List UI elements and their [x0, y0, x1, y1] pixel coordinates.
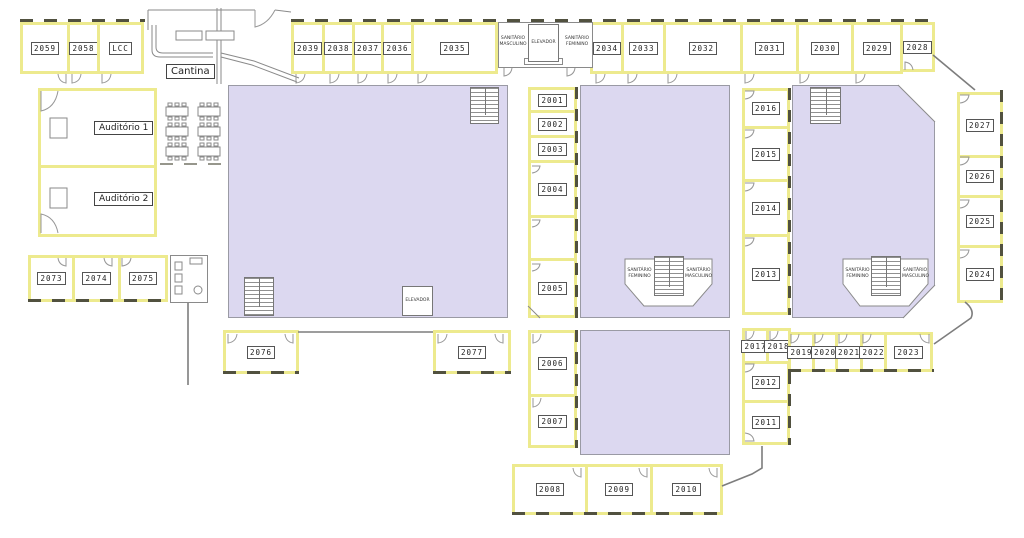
- room-label-2034: 2034: [593, 42, 621, 55]
- room-label-2007: 2007: [538, 415, 566, 428]
- room-2037: 2037: [352, 22, 384, 74]
- dashed-wall: [20, 19, 145, 22]
- stairs-center-sanitary: [654, 256, 684, 296]
- room-label-2025: 2025: [966, 215, 994, 228]
- room-label-2006: 2006: [538, 357, 566, 370]
- room-unlabeled: [528, 215, 577, 261]
- room-label-2001: 2001: [538, 94, 566, 107]
- dashed-wall: [788, 88, 791, 315]
- room-label-2059: 2059: [31, 42, 59, 55]
- room-2073: 2073: [28, 255, 75, 302]
- room-2015: 2015: [742, 126, 790, 182]
- room-label-2014: 2014: [752, 202, 780, 215]
- room-2007: 2007: [528, 394, 577, 448]
- stairs-west-bottom: [244, 277, 274, 316]
- room-label-2003: 2003: [538, 143, 566, 156]
- stairs-east-sanitary: [871, 256, 901, 296]
- room-label-2016: 2016: [752, 102, 780, 115]
- room-label-lcc: LCC: [109, 42, 132, 55]
- room-2031: 2031: [740, 22, 799, 74]
- room-2012: 2012: [742, 361, 790, 403]
- stairs-east-top: [810, 87, 841, 124]
- room-label-2027: 2027: [966, 119, 994, 132]
- dashed-wall: [1000, 90, 1003, 302]
- room-label-2024: 2024: [966, 268, 994, 281]
- room-2003: 2003: [528, 135, 577, 163]
- cantina-label: Cantina: [166, 64, 215, 79]
- room-2009: 2009: [585, 464, 653, 515]
- room-label-2031: 2031: [755, 42, 783, 55]
- room-2030: 2030: [796, 22, 854, 74]
- room-2016: 2016: [742, 88, 790, 129]
- sanitario-masculino-top-label: SANITÁRIO MASCULINO: [498, 36, 528, 47]
- dashed-wall: [223, 371, 299, 374]
- room-2014: 2014: [742, 179, 790, 237]
- room-2029: 2029: [851, 22, 903, 74]
- room-label-2038: 2038: [324, 42, 352, 55]
- room-2058: 2058: [67, 22, 100, 74]
- room-2025: 2025: [957, 195, 1003, 248]
- room-2013: 2013: [742, 234, 790, 315]
- room-2005: 2005: [528, 258, 577, 318]
- stairs-west-top: [470, 87, 499, 124]
- sanitario-feminino-center-label: SANITÁRIO FEMININO: [626, 268, 653, 279]
- room-2011: 2011: [742, 400, 790, 445]
- room-2026: 2026: [957, 155, 1003, 198]
- room-label-2035: 2035: [440, 42, 468, 55]
- dashed-wall: [788, 372, 791, 445]
- room-label-2077: 2077: [458, 346, 486, 359]
- dashed-wall: [433, 371, 511, 374]
- room-label-2074: 2074: [82, 272, 110, 285]
- room-2074: 2074: [72, 255, 121, 302]
- dashed-wall: [28, 299, 168, 302]
- dashed-wall: [512, 512, 723, 515]
- dashed-wall: [575, 330, 578, 448]
- room-2028: 2028: [900, 22, 935, 72]
- room-label-2011: 2011: [752, 416, 780, 429]
- room-2027: 2027: [957, 92, 1003, 158]
- room-label-2013: 2013: [752, 268, 780, 281]
- room-2032: 2032: [663, 22, 743, 74]
- room-label-2009: 2009: [605, 483, 633, 496]
- room-label-2075: 2075: [129, 272, 157, 285]
- room-2038: 2038: [322, 22, 355, 74]
- room-label-2076: 2076: [247, 346, 275, 359]
- open-hall-south: [580, 330, 730, 455]
- room-2036: 2036: [381, 22, 414, 74]
- elevator-west-hall-label: ELEVADOR: [405, 298, 429, 304]
- room-2023: 2023: [884, 332, 933, 372]
- room-2059: 2059: [20, 22, 70, 74]
- room-2024: 2024: [957, 245, 1003, 303]
- room-2034: 2034: [590, 22, 624, 74]
- elevator-top-label: ELEVADOR: [531, 40, 555, 46]
- room-label-2033: 2033: [629, 42, 657, 55]
- room-label-2030: 2030: [811, 42, 839, 55]
- elevator-top: ELEVADOR: [528, 24, 559, 62]
- elevator-west-hall: ELEVADOR: [402, 286, 433, 316]
- room-2022: 2022: [860, 332, 887, 372]
- room-label-2015: 2015: [752, 148, 780, 161]
- room-2077: 2077: [433, 330, 511, 374]
- floor-plan: 2059 2058 LCC 2039 2038 2037 2036 2035 2…: [0, 0, 1024, 538]
- room-label-2058: 2058: [69, 42, 97, 55]
- room-2008: 2008: [512, 464, 588, 515]
- room-2035: 2035: [411, 22, 498, 74]
- room-label-2032: 2032: [689, 42, 717, 55]
- dashed-wall: [160, 163, 222, 165]
- room-label-2037: 2037: [354, 42, 382, 55]
- room-label-2012: 2012: [752, 376, 780, 389]
- room-label-2010: 2010: [672, 483, 700, 496]
- room-label-2005: 2005: [538, 282, 566, 295]
- auditorio-1-label: Auditório 1: [94, 121, 153, 135]
- room-2033: 2033: [621, 22, 666, 74]
- sanitario-masculino-east-label: SANITÁRIO MASCULINO: [902, 268, 928, 279]
- room-label-2008: 2008: [536, 483, 564, 496]
- room-2010: 2010: [650, 464, 723, 515]
- room-2004: 2004: [528, 160, 577, 218]
- auditorio-2-label: Auditório 2: [94, 192, 153, 206]
- dashed-wall: [788, 369, 934, 372]
- room-label-2039: 2039: [294, 42, 322, 55]
- sanitario-feminino-top-label: SANITÁRIO FEMININO: [561, 36, 593, 47]
- room-label-2002: 2002: [538, 118, 566, 131]
- sanitario-feminino-east-label: SANITÁRIO FEMININO: [844, 268, 871, 279]
- wc-small-block: [170, 255, 208, 303]
- room-label-2073: 2073: [37, 272, 65, 285]
- dashed-wall: [575, 87, 578, 318]
- room-2076: 2076: [223, 330, 299, 374]
- room-2039: 2039: [291, 22, 325, 74]
- room-label-2026: 2026: [966, 170, 994, 183]
- room-label-2004: 2004: [538, 183, 566, 196]
- room-2002: 2002: [528, 110, 577, 138]
- room-2075: 2075: [118, 255, 168, 302]
- room-label-2029: 2029: [863, 42, 891, 55]
- dashed-wall: [291, 19, 935, 22]
- room-label-2036: 2036: [383, 42, 411, 55]
- room-lcc: LCC: [97, 22, 144, 74]
- room-label-2028: 2028: [903, 41, 931, 54]
- room-2006: 2006: [528, 330, 577, 397]
- room-label-2023: 2023: [894, 346, 922, 359]
- sanitario-masculino-center-label: SANITÁRIO MASCULINO: [685, 268, 712, 279]
